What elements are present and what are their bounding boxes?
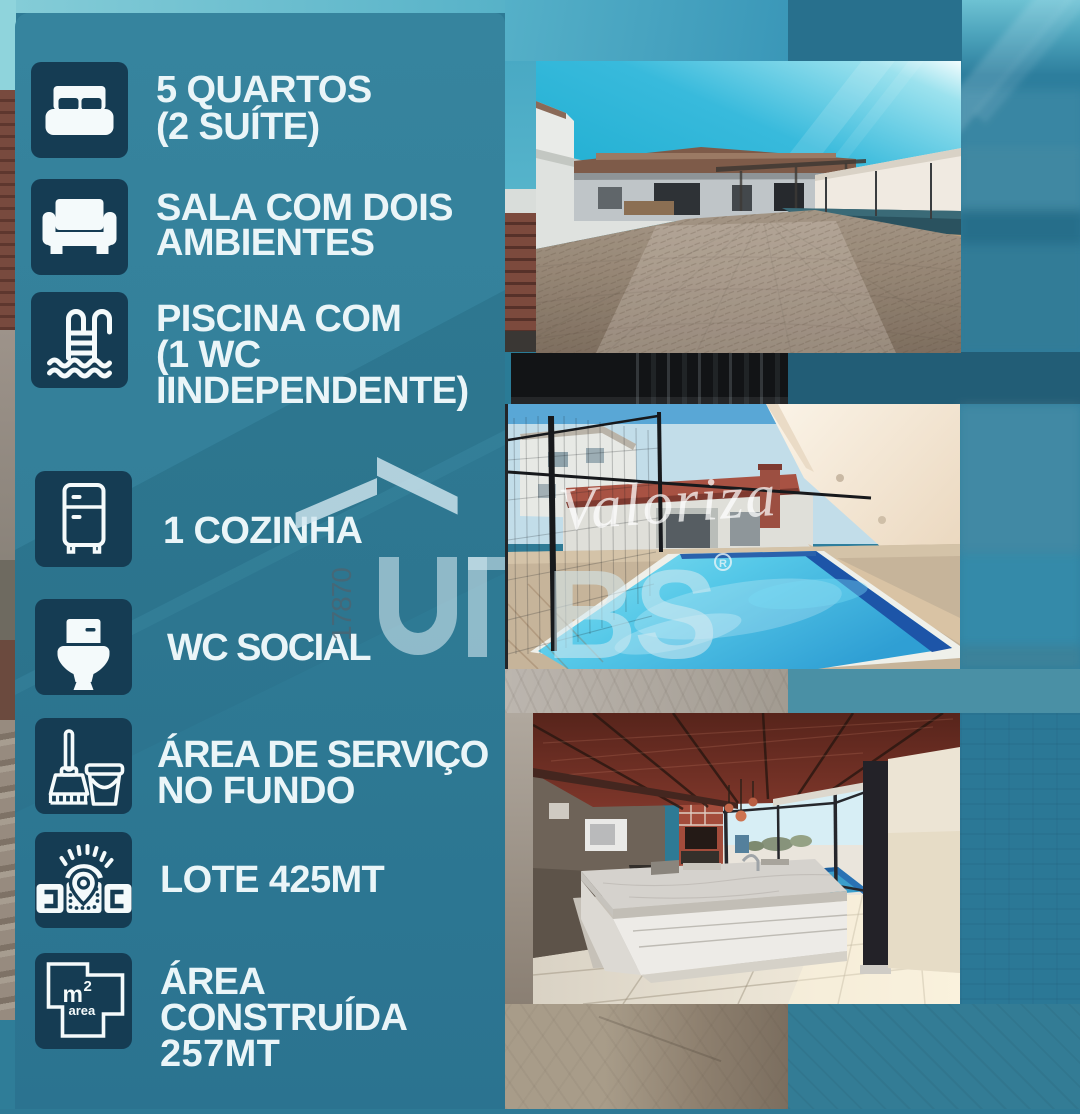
svg-text:2: 2 [84,978,92,995]
svg-text:area: area [69,1003,97,1018]
